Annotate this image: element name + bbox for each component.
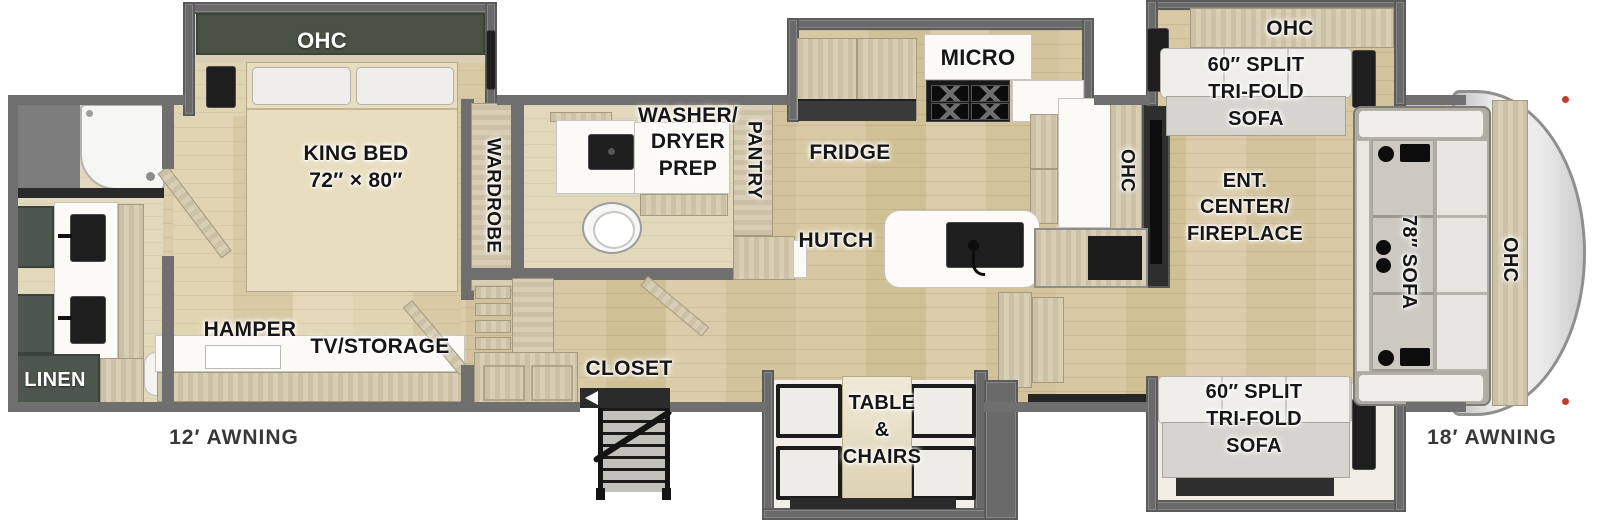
entry-side-column [984, 380, 1018, 520]
label-sofa-top-line2: TRI-FOLD [1208, 79, 1304, 106]
kitchen-counter-side [1058, 98, 1112, 228]
rv-floorplan: OHC KING BED 72″ × 80″ WARDROBE WASHER/ … [0, 0, 1600, 522]
sofa-top-slideout-wall-right [1394, 0, 1406, 106]
console-tray-bottom [1400, 348, 1430, 366]
label-sofa-bottom: 60″ SPLIT TRI-FOLD SOFA [1178, 379, 1330, 460]
label-sofa-top: 60″ SPLIT TRI-FOLD SOFA [1180, 52, 1332, 133]
entry-arrow [585, 391, 598, 405]
shower-door-bar [14, 188, 164, 198]
tv-screen [1150, 120, 1162, 264]
tv-storage-cabinet-front [157, 372, 465, 402]
sofa-bottom-slideout-window [1352, 398, 1376, 470]
interior-door-panel-2 [1032, 297, 1064, 383]
tail-light-marker-bottom [1562, 398, 1569, 405]
exterior-wall-top-3 [1094, 95, 1150, 105]
exterior-wall-bottom-2 [670, 402, 766, 412]
table-slideout-wall-bottom [762, 508, 988, 520]
label-wardrobe: WARDROBE [472, 112, 512, 280]
hall-step-4 [475, 337, 511, 350]
front-sofa-armrest-bottom [1358, 374, 1484, 402]
label-king-bed-line1: KING BED [303, 140, 408, 167]
kitchen-cabinet-row [1030, 114, 1058, 224]
label-sofa-top-line3: SOFA [1228, 106, 1284, 133]
medicine-cabinet-top [12, 206, 54, 268]
faucet-top [58, 234, 72, 238]
console-tray-top [1400, 144, 1430, 162]
front-sofa-back [1436, 140, 1488, 372]
label-78-sofa: 78″ SOFA [1388, 186, 1430, 338]
hall-step-1 [475, 286, 511, 299]
hall-step-2 [475, 303, 511, 316]
wall-bedroom-hall-lower [461, 365, 474, 407]
label-table-line2: & [875, 417, 890, 444]
exterior-wall-top-1 [8, 95, 185, 105]
cup-holder-bottom [1378, 350, 1394, 366]
label-king-bed-line2: 72″ × 80″ [309, 167, 402, 194]
label-king-bed: KING BED 72″ × 80″ [276, 140, 436, 195]
exterior-wall-top-4 [1406, 95, 1466, 105]
cup-holder-top [1378, 146, 1394, 162]
fireplace-cabinet [1034, 228, 1148, 288]
table-slideout-wall-left [762, 370, 774, 520]
label-front-ohc: OHC [1491, 222, 1529, 298]
faucet-bottom [58, 316, 72, 320]
fridge [797, 38, 917, 120]
pillow-right [356, 67, 454, 105]
label-table-line3: CHAIRS [843, 444, 921, 471]
label-sofa-bottom-line2: TRI-FOLD [1206, 406, 1302, 433]
island-sink [946, 222, 1024, 268]
tri-fold-sofa-bottom-base [1176, 478, 1334, 496]
blanket-fold-line [247, 108, 457, 110]
label-kitchen-ohc: OHC [1109, 133, 1143, 209]
label-hamper: HAMPER [197, 317, 303, 342]
exterior-wall-left [8, 95, 18, 412]
cabinet-divider [1031, 168, 1057, 170]
toilet [582, 202, 642, 254]
wall-midbath-left [511, 99, 524, 280]
stove [926, 80, 1010, 122]
label-sofa-top-ohc: OHC [1240, 16, 1340, 41]
slideout-window [486, 30, 496, 90]
stair-foot-left [596, 488, 605, 500]
label-sofa-bottom-line3: SOFA [1226, 433, 1282, 460]
kitchen-slideout-wall-top [787, 18, 1094, 30]
label-sofa-bottom-line1: 60″ SPLIT [1206, 379, 1303, 406]
sofa-top-end-table [1352, 50, 1376, 108]
label-table-line1: TABLE [849, 390, 916, 417]
label-closet: CLOSET [578, 356, 680, 381]
label-table-chairs: TABLE & CHAIRS [808, 390, 956, 471]
nightstand [206, 66, 236, 108]
washer-dryer-base-drawers [640, 194, 728, 216]
bath-cabinet-strip [118, 204, 144, 360]
vanity-sink-bottom [70, 296, 106, 344]
label-ent-line2: CENTER/ [1200, 194, 1290, 220]
sofa-bottom-slideout-wall-left [1146, 376, 1158, 512]
fireplace-insert [1088, 236, 1142, 280]
sofa-bottom-slideout-wall-bottom [1146, 500, 1406, 512]
label-pantry: PANTRY [735, 102, 771, 218]
shower-head [86, 110, 93, 117]
wall-rear-bath-divider-lower [162, 256, 174, 404]
shower-drain [146, 172, 155, 181]
table-slideout-base [790, 498, 956, 509]
pillow-left [252, 67, 351, 105]
label-fridge: FRIDGE [792, 140, 908, 165]
burner-4 [971, 103, 1009, 120]
toilet-seat [593, 211, 635, 249]
closet-bench [474, 352, 578, 406]
fridge-door-split [856, 39, 858, 99]
burner-3 [931, 103, 969, 120]
label-linen: LINEN [12, 368, 98, 392]
rear-bath-corner-wall [16, 99, 80, 189]
front-sofa-footrest [1356, 140, 1370, 372]
front-sofa-armrest-top [1358, 110, 1484, 138]
exterior-wall-bottom-3 [984, 402, 1148, 412]
interior-door-panel-1 [998, 292, 1032, 388]
linen-side-shelf [100, 358, 144, 404]
label-wd-line1: WASHER/ [638, 103, 738, 129]
hall-step-3 [475, 320, 511, 333]
bench-panel-1 [483, 365, 525, 401]
label-awning-right: 18′ AWNING [1402, 425, 1582, 450]
hamper-box [205, 345, 281, 369]
label-wd-line2: DRYER [651, 129, 725, 155]
label-ent-center: ENT. CENTER/ FIREPLACE [1175, 168, 1315, 247]
label-sofa-top-line1: 60″ SPLIT [1208, 52, 1305, 79]
label-hutch: HUTCH [788, 228, 884, 253]
label-ent-line1: ENT. [1223, 168, 1268, 194]
exterior-wall-bottom-1 [8, 402, 580, 412]
label-bed-ohc: OHC [272, 28, 372, 54]
bench-panel-2 [531, 365, 573, 401]
label-tv-storage: TV/STORAGE [300, 334, 460, 359]
closet-cabinet [512, 278, 554, 358]
label-ent-line3: FIREPLACE [1187, 221, 1303, 247]
label-awning-left: 12′ AWNING [152, 425, 316, 450]
vanity-sink-top [70, 214, 106, 262]
hutch-cabinet [733, 236, 795, 280]
medicine-cabinet-bottom [12, 294, 54, 354]
fridge-lower-doors [798, 99, 916, 121]
exterior-wall-bottom-4 [1406, 402, 1466, 412]
burner-1 [931, 85, 969, 102]
wall-rear-bath-divider-upper [162, 99, 174, 169]
label-micro: MICRO [924, 45, 1032, 71]
burner-2 [971, 85, 1009, 102]
label-wd-line3: PREP [659, 156, 717, 182]
stair-foot-right [662, 488, 671, 500]
tail-light-marker-top [1562, 96, 1569, 103]
